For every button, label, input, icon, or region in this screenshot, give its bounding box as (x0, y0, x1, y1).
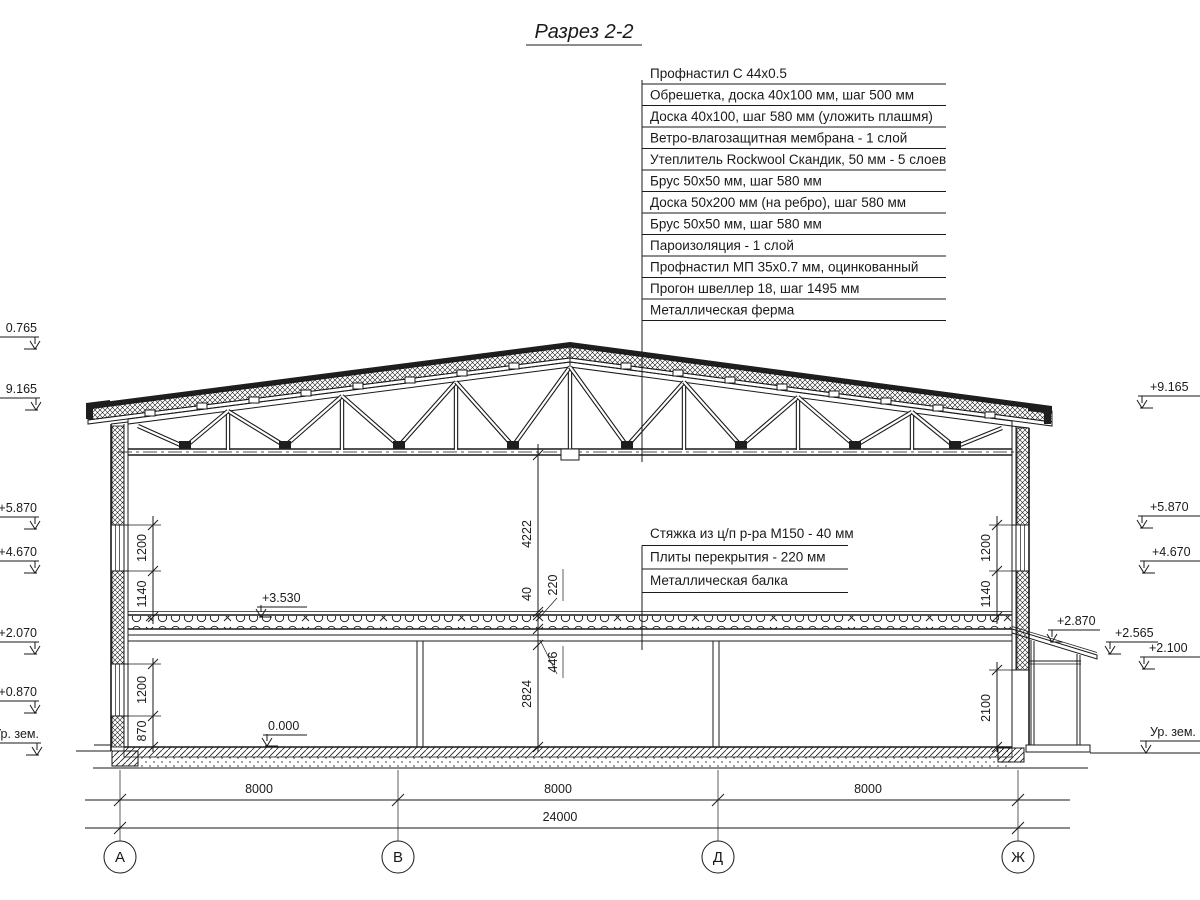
elevation-mark: +5.870 (0, 501, 40, 529)
axis-label: В (393, 849, 403, 866)
dim-value: 24000 (543, 810, 578, 824)
dim-value: 870 (135, 721, 149, 742)
dim-value: 220 (546, 575, 560, 596)
axis-label: А (115, 849, 125, 866)
svg-text:+0.870: +0.870 (0, 685, 37, 699)
callout-item: Утеплитель Rockwool Скандик, 50 мм - 5 с… (650, 152, 946, 167)
dim-chain-left: 1200 1140 1200 870 (128, 516, 161, 752)
svg-text:Ур. зем.: Ур. зем. (0, 727, 39, 741)
elevation-mark: +3.530 (256, 591, 307, 617)
callout-item: Обрешетка, доска 40х100 мм, шаг 500 мм (650, 88, 914, 103)
column-axis-B (417, 641, 423, 747)
svg-text:0.000: 0.000 (268, 719, 299, 733)
eave-channel-left-web (86, 407, 93, 419)
metal-truss (118, 367, 1022, 460)
callout-item: Прогон швеллер 18, шаг 1495 мм (650, 281, 859, 296)
svg-text:+9.165: +9.165 (1150, 380, 1189, 394)
elevation-mark: +4.670 (1139, 545, 1200, 573)
svg-text:+2.565: +2.565 (1115, 626, 1154, 640)
svg-text:9.165: 9.165 (6, 382, 37, 396)
right-wall (1012, 426, 1029, 748)
axis-bubble-B: В (382, 841, 414, 873)
elevation-mark: +4.670 (0, 545, 40, 573)
callout-item: Брус 50х50 мм, шаг 580 мм (650, 174, 822, 189)
bottom-dimensions: 8000 8000 8000 24000 (85, 770, 1070, 841)
title-text: Разрез 2-2 (534, 21, 633, 43)
left-window-upper (111, 525, 128, 571)
svg-text:+2.870: +2.870 (1057, 614, 1096, 628)
roof-boards-left (88, 358, 570, 424)
left-wall (111, 422, 128, 751)
axis-label: Ж (1011, 849, 1025, 866)
svg-text:Ур. зем.: Ур. зем. (1150, 725, 1196, 739)
svg-text:+2.070: +2.070 (0, 626, 37, 640)
elevation-mark: +5.870 (1137, 500, 1200, 528)
svg-text:+2.100: +2.100 (1149, 641, 1188, 655)
svg-text:+5.870: +5.870 (1150, 500, 1189, 514)
elevation-mark: 0.765 (0, 321, 40, 349)
svg-text:+3.530: +3.530 (262, 591, 301, 605)
elevation-marks-right: +9.165 +5.870 +4.670 +2.870 +2.565 +2.10… (1047, 380, 1200, 753)
dim-value: 1200 (979, 534, 993, 562)
dim-value: 4222 (520, 520, 534, 548)
axis-bubble-D: Д (702, 841, 734, 873)
callout-item: Плиты перекрытия - 220 мм (650, 550, 826, 565)
eave-channel-right-web (1044, 412, 1051, 424)
metal-beam (128, 635, 1012, 641)
callout-item: Стяжка из ц/п р-ра М150 - 40 мм (650, 526, 854, 541)
dim-chain-right: 1200 1140 2100 (979, 516, 1012, 752)
axis-bubble-Zh: Ж (1002, 841, 1034, 873)
elevation-marks-left: 0.765 9.165 +5.870 +4.670 +2.070 +0.870 … (0, 321, 42, 755)
drawing-title: Разрез 2-2 (526, 21, 642, 45)
elevation-mark: Ур. зем. (0, 727, 42, 755)
callout-item: Доска 50х200 мм (на ребро), шаг 580 мм (650, 195, 906, 210)
elevation-mark: +2.870 (1047, 614, 1100, 642)
lean-to-base-plate (1026, 745, 1090, 752)
dim-value: 2824 (520, 680, 534, 708)
elevation-mark: 9.165 (0, 382, 41, 410)
right-window-upper (1012, 525, 1029, 571)
footing-left (112, 751, 138, 766)
callout-item: Профнастил МП 35х0.7 мм, оцинкованный (650, 260, 918, 275)
axis-label: Д (713, 849, 723, 866)
axis-bubbles: А В Д Ж (104, 841, 1034, 873)
footing-right (998, 748, 1024, 762)
dim-value: 40 (520, 587, 534, 601)
truss-web-members (138, 367, 1002, 450)
dim-value: 8000 (854, 782, 882, 796)
dim-value: 446 (546, 652, 560, 673)
elevation-mark: Ур. зем. (1140, 725, 1200, 753)
elevation-mark: +0.870 (0, 685, 40, 713)
dim-value: 2100 (979, 694, 993, 722)
elevation-mark: +2.100 (1139, 641, 1200, 669)
floor-slab (128, 612, 1012, 630)
callout-item: Пароизоляция - 1 слой (650, 238, 794, 253)
elevation-mark: +9.165 (1137, 380, 1200, 408)
callout-item: Брус 50х50 мм, шаг 580 мм (650, 217, 822, 232)
left-window-lower (111, 664, 128, 716)
roof-callout-list: Профнастил С 44х0.5 Обрешетка, доска 40х… (642, 66, 946, 321)
floor-base-dots (140, 757, 1012, 768)
chord-connection-plate (561, 449, 579, 460)
elevation-mark: 0.000 (262, 719, 307, 746)
dim-value: 1140 (979, 581, 993, 608)
callout-item: Металлическая балка (650, 573, 788, 588)
svg-text:0.765: 0.765 (6, 321, 37, 335)
floor-screed-hatch (124, 747, 1012, 757)
hollow-core-slab (129, 616, 1011, 629)
dim-value: 1200 (135, 534, 149, 562)
svg-text:+4.670: +4.670 (1152, 545, 1191, 559)
callout-item: Профнастил С 44х0.5 (650, 66, 787, 81)
dim-value: 8000 (544, 782, 572, 796)
axis-bubble-A: А (104, 841, 136, 873)
column-axis-D (713, 641, 719, 747)
dim-value: 8000 (245, 782, 273, 796)
callout-item: Ветро-влагозащитная мембрана - 1 слой (650, 131, 907, 146)
callout-item: Доска 40х100, шаг 580 мм (уложить плашмя… (650, 109, 933, 124)
elevation-mark: +2.070 (0, 626, 40, 654)
section-drawing: Разрез 2-2 (0, 0, 1200, 900)
svg-text:+4.670: +4.670 (0, 545, 37, 559)
dim-value: 1200 (135, 676, 149, 704)
dim-chain-center: 4222 40 220 446 2824 (520, 444, 563, 752)
floor-callout-list: Стяжка из ц/п р-ра М150 - 40 мм Плиты пе… (642, 526, 854, 593)
dim-value: 1140 (135, 581, 149, 608)
roof-sheet-left (88, 342, 570, 409)
callout-item: Металлическая ферма (650, 303, 795, 318)
svg-text:+5.870: +5.870 (0, 501, 37, 515)
